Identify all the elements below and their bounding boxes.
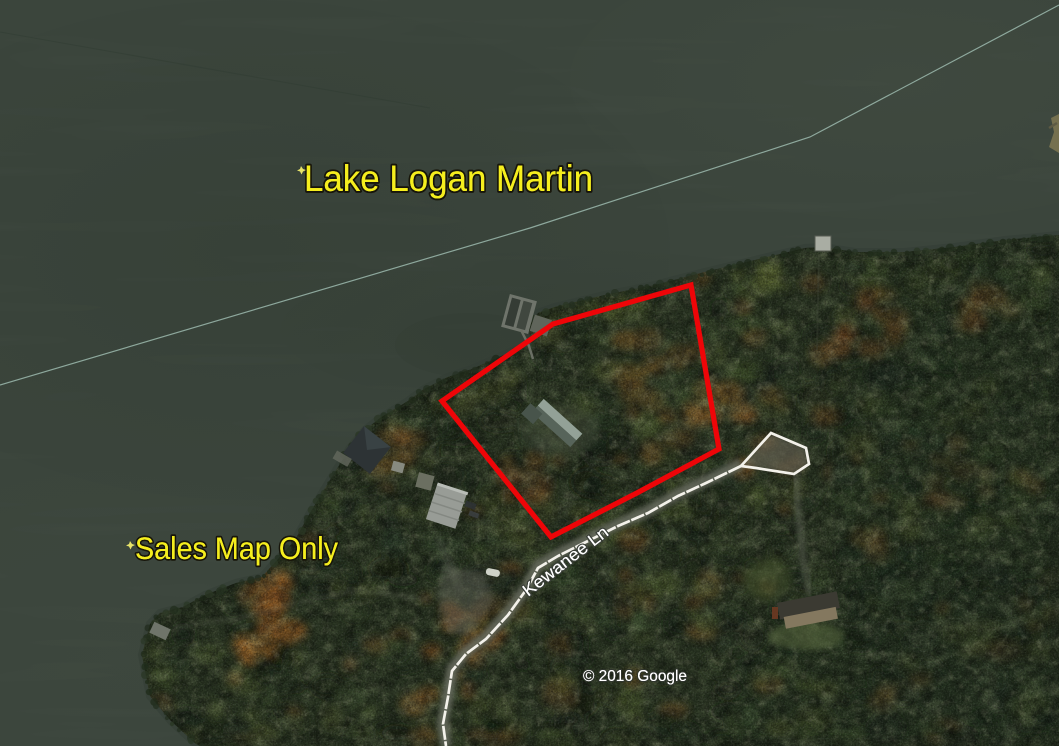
svg-text:Sales Map Only: Sales Map Only — [135, 530, 338, 566]
svg-text:Lake Logan Martin: Lake Logan Martin — [304, 157, 593, 199]
svg-text:© 2016 Google: © 2016 Google — [583, 668, 687, 685]
